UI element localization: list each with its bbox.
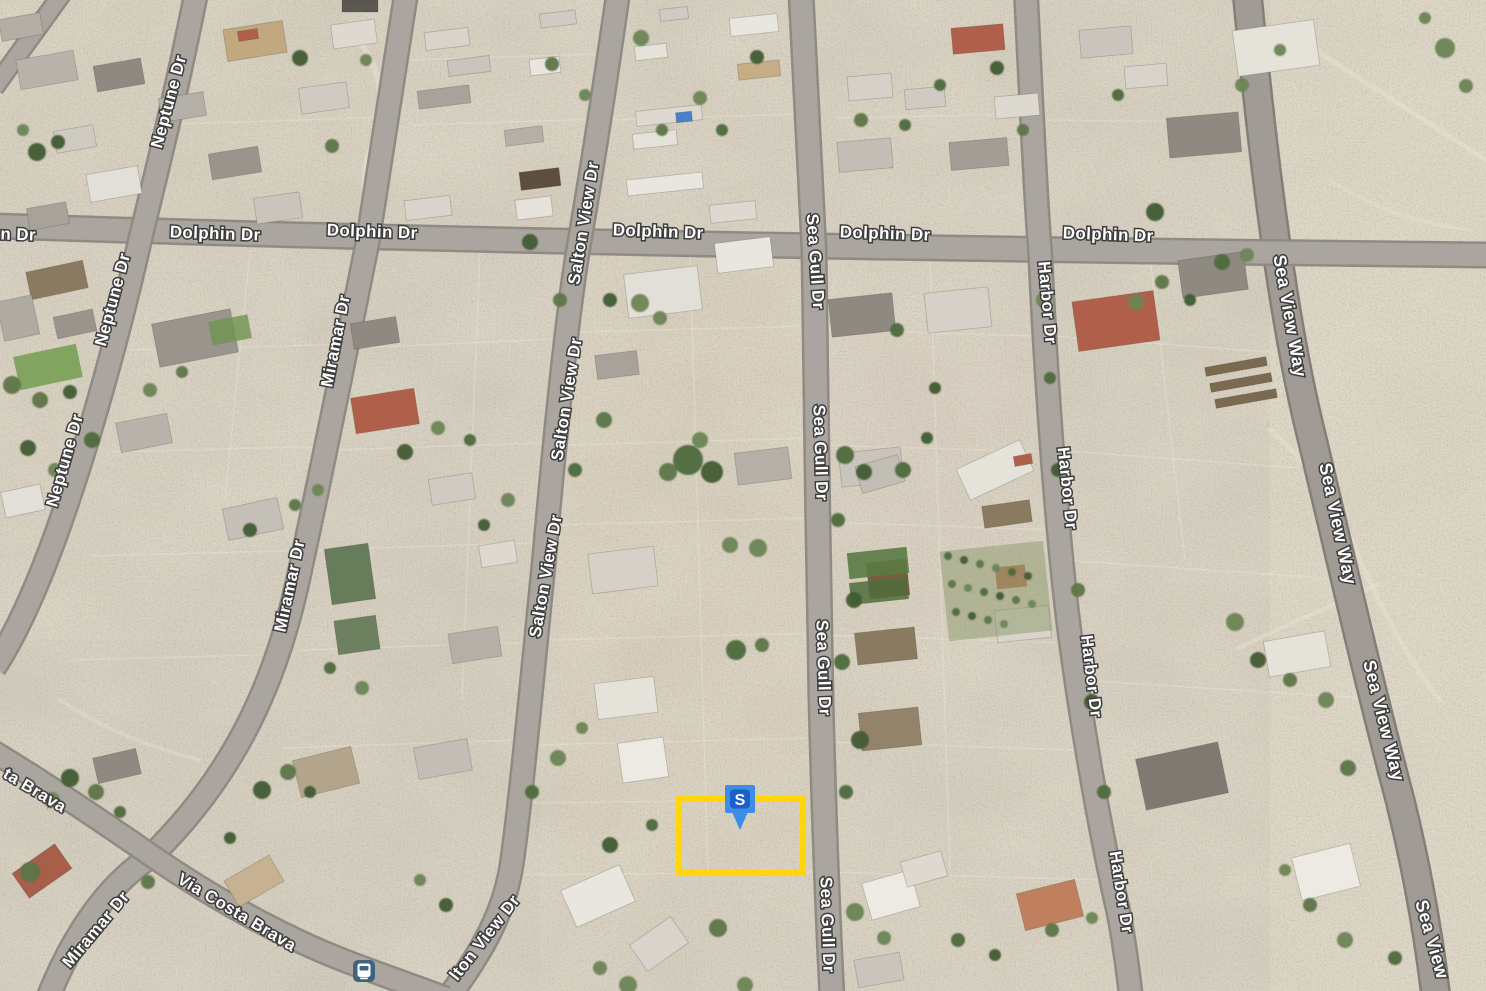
tree [88, 784, 104, 800]
tree [1226, 613, 1244, 631]
tree [550, 750, 566, 766]
building [854, 627, 917, 665]
tree [360, 54, 372, 66]
tree [934, 79, 946, 91]
tree [726, 640, 746, 660]
tree [576, 722, 588, 734]
tree [1340, 760, 1356, 776]
building [634, 43, 667, 60]
tree [709, 919, 727, 937]
tree [1318, 692, 1334, 708]
tree [17, 124, 29, 136]
tree [646, 819, 658, 831]
street-label: Sea Gull Dr [816, 876, 838, 973]
tree [501, 493, 515, 507]
tree [243, 523, 257, 537]
tree [176, 366, 188, 378]
tree [312, 484, 324, 496]
tree [899, 119, 911, 131]
tree [1303, 898, 1317, 912]
tree [478, 519, 490, 531]
tree [63, 385, 77, 399]
building [828, 293, 896, 337]
tree [834, 654, 850, 670]
tree [292, 50, 308, 66]
satellite-map[interactable]: n DrDolphin DrDolphin DrDolphin DrDolphi… [0, 0, 1486, 991]
building [837, 138, 893, 173]
tree [839, 785, 853, 799]
tree [877, 931, 891, 945]
tree [851, 731, 869, 749]
tree [522, 234, 538, 250]
tree [253, 781, 271, 799]
tree [989, 949, 1001, 961]
building [847, 73, 893, 101]
tree [568, 463, 582, 477]
tree [1435, 38, 1455, 58]
building [734, 447, 791, 485]
tree [1250, 652, 1266, 668]
tree [976, 560, 984, 568]
building [1166, 112, 1241, 158]
tree [579, 89, 591, 101]
tree [3, 376, 21, 394]
tree [980, 588, 988, 596]
street-label: Dolphin Dr [326, 220, 417, 242]
building [617, 737, 668, 783]
tree [968, 612, 976, 620]
tree [1112, 89, 1124, 101]
tree [525, 785, 539, 799]
bus-icon-window [360, 966, 369, 971]
tree [1008, 568, 1016, 576]
building [595, 351, 640, 380]
building [594, 676, 658, 719]
tree [1024, 572, 1032, 580]
tree [397, 444, 413, 460]
tree [28, 143, 46, 161]
tree [846, 903, 864, 921]
tree [659, 463, 677, 481]
tree [929, 382, 941, 394]
street-label: Dolphin Dr [169, 222, 260, 244]
tree [633, 30, 649, 46]
tree [431, 421, 445, 435]
tree [289, 499, 301, 511]
building [1124, 63, 1168, 89]
lawn-patch [940, 541, 1053, 641]
building [324, 543, 375, 605]
building [334, 615, 380, 655]
tree [1240, 248, 1254, 262]
tree [1283, 673, 1297, 687]
tree [414, 874, 426, 886]
tree [324, 662, 336, 674]
tree [846, 592, 862, 608]
tree [143, 383, 157, 397]
satellite-map-viewport[interactable]: n DrDolphin DrDolphin DrDolphin DrDolphi… [0, 0, 1486, 991]
tree [952, 608, 960, 616]
tree [51, 135, 65, 149]
tree [990, 61, 1004, 75]
tree [1128, 294, 1144, 310]
tree [755, 638, 769, 652]
building [659, 7, 688, 22]
tree [1155, 275, 1169, 289]
tree [996, 592, 1004, 600]
tree [224, 832, 236, 844]
tree [1337, 932, 1353, 948]
tree [1279, 864, 1291, 876]
tree [1388, 951, 1402, 965]
building [924, 287, 992, 333]
tree [948, 580, 956, 588]
tree [84, 432, 100, 448]
tree [831, 513, 845, 527]
street-label: Dolphin Dr [839, 222, 930, 244]
tree [964, 584, 972, 592]
tree [1012, 596, 1020, 604]
tree [716, 124, 728, 136]
tree [693, 91, 707, 105]
tree [1459, 79, 1473, 93]
tree [355, 681, 369, 695]
tree [141, 875, 155, 889]
tree [1071, 583, 1085, 597]
tree [951, 933, 965, 947]
tree [656, 124, 668, 136]
tree [61, 769, 79, 787]
tree [32, 392, 48, 408]
tree [890, 323, 904, 337]
bus-icon-base [360, 978, 368, 980]
street-label: n Dr [0, 224, 36, 244]
tree [856, 464, 872, 480]
tree [593, 961, 607, 975]
street-label: Sea Gull Dr [809, 404, 831, 501]
tree [1235, 78, 1249, 92]
tree [1274, 44, 1286, 56]
street-label: Dolphin Dr [1062, 223, 1153, 245]
tree [1086, 912, 1098, 924]
tree [545, 57, 559, 71]
tree [895, 462, 911, 478]
tree [553, 293, 567, 307]
building [1079, 26, 1133, 58]
tree [854, 113, 868, 127]
tree [960, 556, 968, 564]
pin-letter: S [735, 792, 746, 809]
tree [325, 139, 339, 153]
tree [1146, 203, 1164, 221]
tree [464, 434, 476, 446]
tree [749, 539, 767, 557]
tree [1028, 600, 1036, 608]
tree [596, 412, 612, 428]
tree [603, 293, 617, 307]
tree [984, 616, 992, 624]
tree [20, 440, 36, 456]
tree [1419, 12, 1431, 24]
tree [921, 432, 933, 444]
tree [750, 50, 764, 64]
tree [1017, 124, 1029, 136]
tree [602, 837, 618, 853]
tree [673, 445, 703, 475]
street-label: Sea Gull Dr [812, 619, 834, 716]
tree [1045, 923, 1059, 937]
bus-stop-icon[interactable] [353, 960, 375, 982]
tree [1044, 372, 1056, 384]
tree [701, 461, 723, 483]
tree [1097, 785, 1111, 799]
tree [20, 862, 40, 882]
building [588, 546, 658, 594]
bus-icon-wheel-right [366, 973, 369, 976]
tree [280, 764, 296, 780]
building [994, 93, 1040, 119]
tree [653, 311, 667, 325]
tree [1000, 620, 1008, 628]
tree [992, 564, 1000, 572]
building [676, 111, 693, 123]
building [951, 24, 1005, 54]
tree [944, 552, 952, 560]
street-label: Dolphin Dr [612, 220, 703, 242]
building [515, 196, 553, 220]
building [949, 138, 1009, 171]
tree [722, 537, 738, 553]
tree [1214, 254, 1230, 270]
tree [114, 806, 126, 818]
tree [836, 446, 854, 464]
tree [631, 294, 649, 312]
building [714, 237, 773, 274]
tree [692, 432, 708, 448]
bus-icon-wheel-left [359, 973, 362, 976]
tree [1184, 294, 1196, 306]
tree [304, 786, 316, 798]
tree [439, 898, 453, 912]
building [342, 0, 378, 12]
